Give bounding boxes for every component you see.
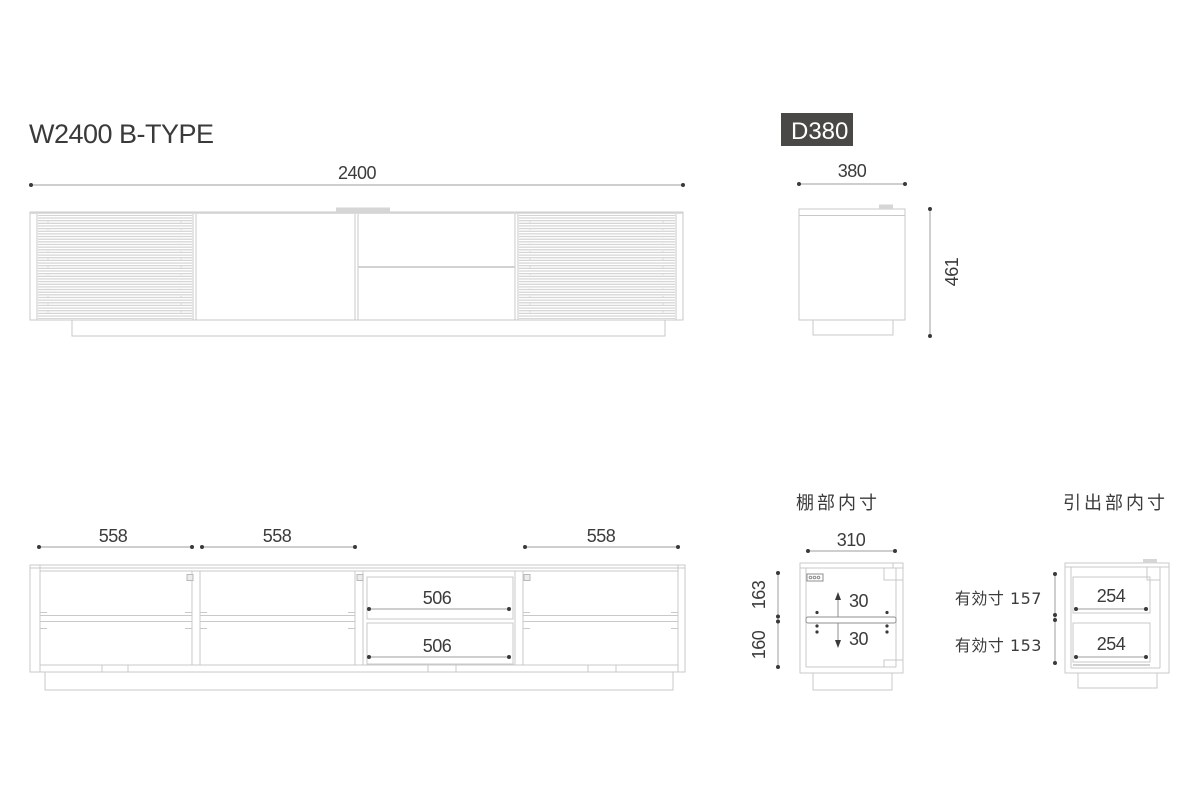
drawer-dim-label-1: 506 <box>423 588 452 608</box>
side-plinth <box>813 320 893 335</box>
front-plinth <box>72 320 665 336</box>
drawer-dimension-2: 506 <box>367 636 511 659</box>
adjustable-shelf <box>806 617 896 623</box>
shelf-down-adjust-label: 30 <box>849 629 869 649</box>
shelf-width-label: 310 <box>837 530 866 550</box>
inner-plinth <box>45 672 673 690</box>
bay-dimension-1: 558 <box>37 526 194 549</box>
drawer-detail-view: 引出部内寸 254 254 有効寸 157 有 <box>955 493 1169 688</box>
shelf-detail-title: 棚部内寸 <box>796 493 880 514</box>
front-view: 2400 <box>29 163 685 336</box>
drawer-depth-dimension-2: 254 <box>1074 634 1148 659</box>
drawer-effective-top-label: 有効寸 157 <box>955 589 1042 608</box>
drawer-detail-title: 引出部内寸 <box>1063 493 1168 514</box>
bottom-rail-joints <box>102 665 616 672</box>
drawer-dimension-1: 506 <box>367 588 511 611</box>
drawer-depth-label-2: 254 <box>1097 634 1126 654</box>
shelf-pin-ticks <box>40 613 678 629</box>
inner-carcass-outline <box>30 565 685 672</box>
drawer-height-dimensions: 有効寸 157 有効寸 153 <box>955 572 1057 665</box>
side-top-tab <box>879 205 893 210</box>
drawing-sheet: W2400 B-TYPE 2400 <box>0 0 1200 800</box>
page-title: W2400 B-TYPE <box>29 119 214 149</box>
drawer-top-tab <box>1143 559 1157 564</box>
bay-dim-label-2: 558 <box>263 526 292 546</box>
side-width-label: 380 <box>838 161 867 181</box>
front-right-slat-door <box>519 215 675 319</box>
drawer-depth-label-1: 254 <box>1097 586 1126 606</box>
depth-badge-label: D380 <box>791 118 848 145</box>
bottom-corner-bracket <box>884 660 903 667</box>
inner-view: 558 558 558 <box>30 526 685 690</box>
side-height-dimension: 461 <box>928 207 962 338</box>
side-height-label: 461 <box>942 257 962 286</box>
shelf-up-adjust-label: 30 <box>849 591 869 611</box>
bay-dimension-2: 558 <box>200 526 357 549</box>
shelf-upper-dim-label: 163 <box>749 580 769 609</box>
shelf-detail-view: 棚部内寸 310 <box>749 493 903 690</box>
front-left-slat-door <box>38 215 192 319</box>
drawer-depth-dimension-1: 254 <box>1074 586 1148 611</box>
drawer-detail-plinth <box>1078 673 1157 688</box>
bay-dimension-3: 558 <box>523 526 680 549</box>
shelf-detail-plinth <box>813 673 892 690</box>
top-corner-bracket <box>884 568 903 580</box>
drawer-back-notch <box>1147 567 1160 580</box>
bay-dim-label-3: 558 <box>587 526 616 546</box>
shelf-height-dimensions: 163 160 <box>749 571 780 669</box>
side-view: D380 380 461 <box>781 113 962 338</box>
technical-drawing: W2400 B-TYPE 2400 <box>0 0 1200 800</box>
drawer-effective-bottom-label: 有効寸 153 <box>955 636 1042 655</box>
drawer-dim-label-2: 506 <box>423 636 452 656</box>
front-width-dimension: 2400 <box>29 163 685 187</box>
bay-dim-label-1: 558 <box>99 526 128 546</box>
shelf-lower-dim-label: 160 <box>749 630 769 659</box>
partitions <box>192 571 523 665</box>
side-body-outline <box>799 209 905 320</box>
shelf-rail-detail <box>807 574 823 581</box>
shelf-width-dimension: 310 <box>806 530 897 553</box>
front-width-label: 2400 <box>338 163 377 183</box>
front-top-tab <box>336 208 390 213</box>
shelf-adjust-arrows: 30 30 <box>835 591 869 649</box>
shelves <box>40 616 678 622</box>
side-width-dimension: 380 <box>797 161 907 186</box>
